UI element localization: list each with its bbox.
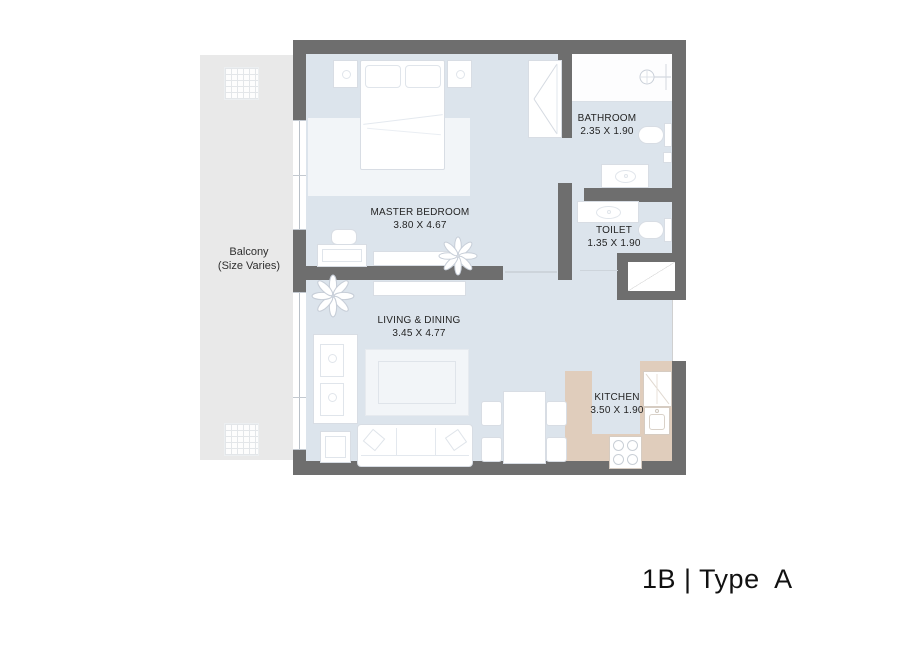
stove [609, 436, 642, 469]
toilet-sink [577, 201, 639, 223]
wall-left-a [293, 40, 306, 120]
label-bathroom: BATHROOM 2.35 X 1.90 [557, 112, 657, 138]
wall-bath-toilet-divider [584, 188, 672, 202]
room-name: BATHROOM [557, 112, 657, 125]
dining-chair [481, 437, 502, 462]
service-shaft-duct [628, 262, 675, 291]
living-balcony-window [293, 292, 306, 450]
shower-head-icon [638, 62, 672, 92]
bed [360, 60, 445, 170]
bedroom-desk [317, 244, 367, 267]
dining-chair [481, 401, 502, 426]
plan-title: 1B | Type A [642, 564, 793, 595]
dining-chair [546, 437, 567, 462]
label-toilet: TOILET 1.35 X 1.90 [564, 224, 664, 250]
label-kitchen: KITCHEN 3.50 X 1.90 [572, 391, 662, 417]
balcony-name: Balcony [199, 245, 299, 259]
room-name: LIVING & DINING [339, 314, 499, 327]
wall-top [293, 40, 686, 54]
entry-door-opening [672, 300, 673, 361]
nightstand-left [333, 60, 358, 88]
toilet-wc-tank [664, 218, 672, 242]
wall-right-lower [672, 361, 686, 475]
room-dims: 2.35 X 1.90 [557, 125, 657, 138]
balcony-floor-pattern-icon [224, 423, 259, 456]
room-dims: 3.80 X 4.67 [340, 219, 500, 232]
bedroom-window [293, 120, 306, 230]
dining-chair [546, 401, 567, 426]
balcony-floor-pattern-icon [224, 67, 259, 100]
side-table [320, 431, 351, 463]
floorplan-canvas: MASTER BEDROOM 3.80 X 4.67 BATHROOM 2.35… [0, 0, 915, 655]
bathroom-vanity [601, 164, 649, 188]
room-dims: 3.45 X 4.77 [339, 327, 499, 340]
room-name: MASTER BEDROOM [340, 206, 500, 219]
living-rug [365, 349, 469, 416]
living-sideboard [373, 281, 466, 296]
label-balcony: Balcony (Size Varies) [199, 245, 299, 273]
sofa [357, 424, 473, 467]
wall-left-c [293, 450, 306, 475]
toilet-door-line [580, 270, 618, 271]
bathroom-drain [663, 152, 672, 163]
tv-console [313, 334, 358, 424]
room-name: KITCHEN [572, 391, 662, 404]
nightstand-right [447, 60, 472, 88]
plant-icon [311, 274, 355, 318]
room-dims: 1.35 X 1.90 [564, 237, 664, 250]
balcony-note: (Size Varies) [199, 259, 299, 273]
label-living-dining: LIVING & DINING 3.45 X 4.77 [339, 314, 499, 340]
plant-icon [438, 236, 478, 276]
room-name: TOILET [564, 224, 664, 237]
bathroom-wc-tank [664, 123, 672, 147]
room-dims: 3.50 X 1.90 [572, 404, 662, 417]
bedroom-door-line [505, 271, 557, 273]
label-master-bedroom: MASTER BEDROOM 3.80 X 4.67 [340, 206, 500, 232]
dining-table [503, 391, 546, 464]
